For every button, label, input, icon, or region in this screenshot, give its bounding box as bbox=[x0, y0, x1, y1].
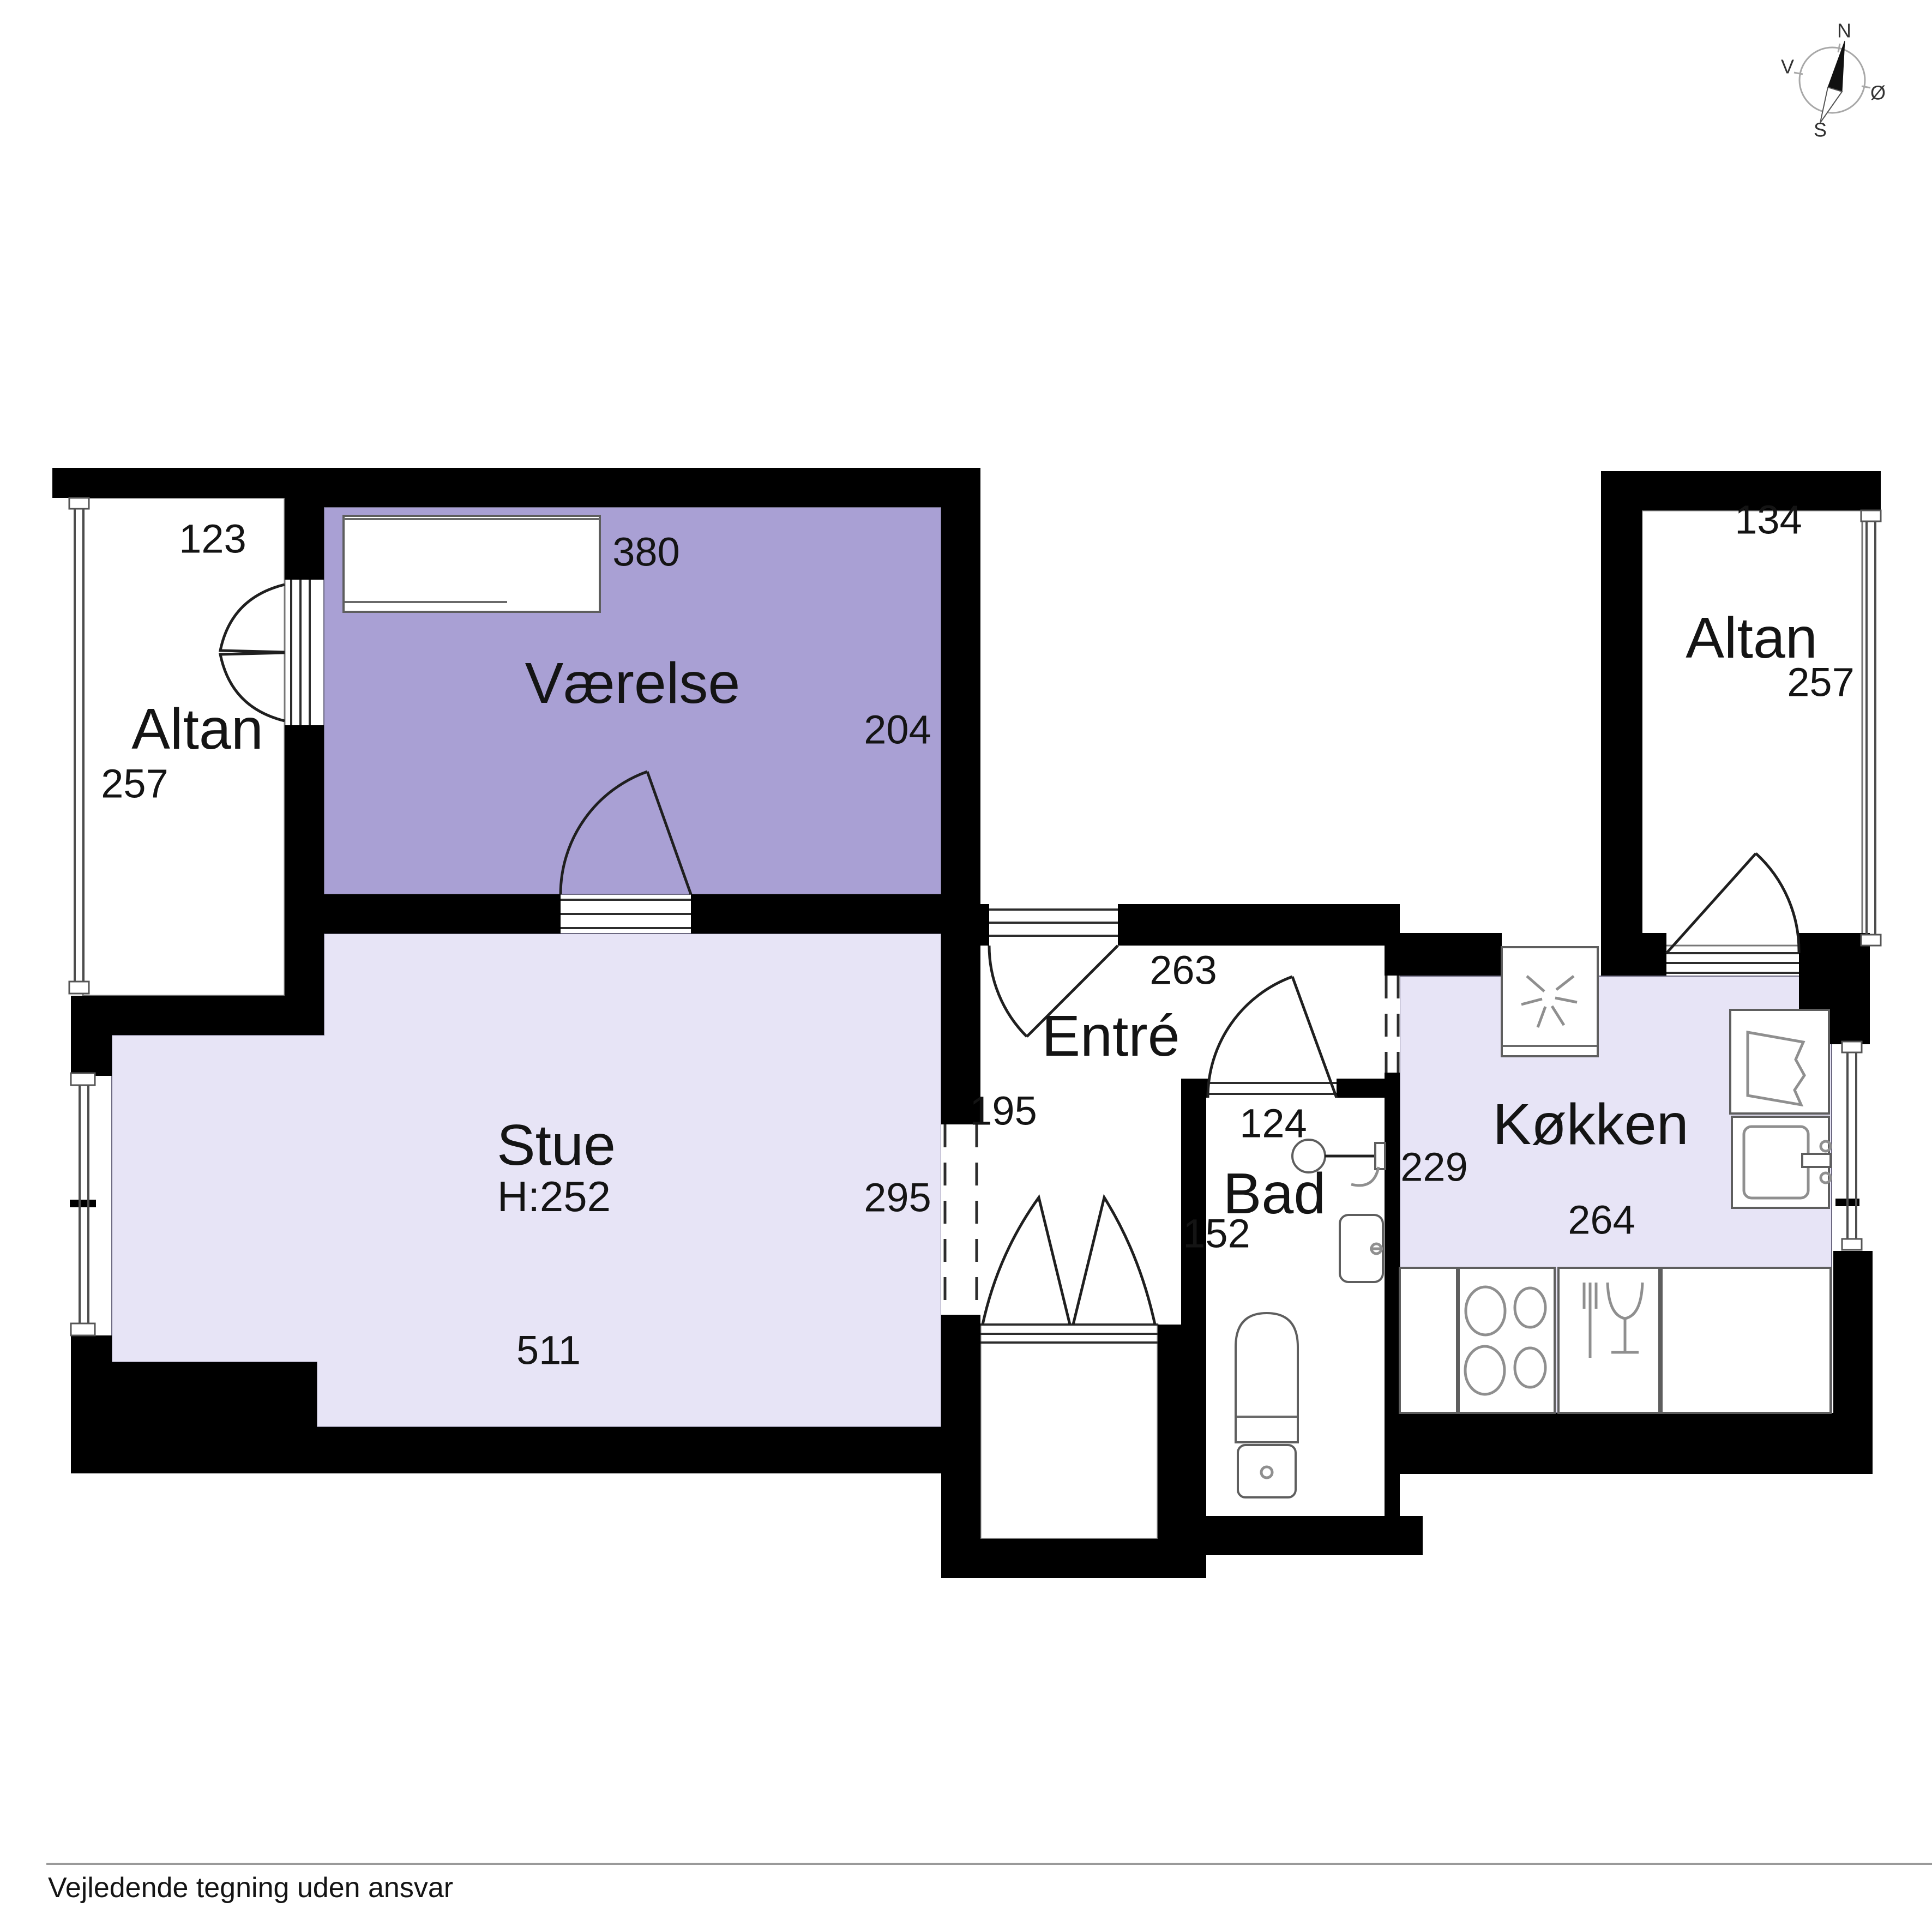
wall-entre-top-left-stub bbox=[980, 904, 989, 946]
compass-w: V bbox=[1781, 56, 1794, 78]
vaerelse-width: 380 bbox=[612, 529, 679, 575]
altan-left-depth: 257 bbox=[101, 761, 168, 806]
wall-bad-left bbox=[1181, 1079, 1206, 1325]
entry-landing-floor bbox=[980, 1325, 1158, 1539]
wall-altan-left-top bbox=[52, 468, 287, 498]
koekken-label: Køkken bbox=[1492, 1092, 1688, 1157]
wall-bad-top-right bbox=[1337, 1079, 1385, 1098]
altan-right-railing bbox=[1861, 510, 1881, 946]
footer-disclaimer: Vejledende tegning uden ansvar bbox=[48, 1872, 453, 1904]
koekken-counter bbox=[1400, 1268, 1831, 1413]
compass-n: N bbox=[1837, 20, 1851, 42]
wall-stue-bottom-right bbox=[317, 1427, 980, 1473]
koekken-fridge-unit bbox=[1730, 1010, 1829, 1114]
bad-width: 124 bbox=[1239, 1101, 1307, 1146]
wall-stue-right-upper bbox=[941, 468, 980, 1124]
vaerelse-door-sill bbox=[561, 900, 691, 928]
compass-e: Ø bbox=[1870, 82, 1886, 104]
stue-opening: 195 bbox=[970, 1088, 1037, 1134]
vaerelse-label: Værelse bbox=[525, 651, 741, 715]
koekken-sink bbox=[1732, 1117, 1831, 1208]
floorplan-page: Altan 123 257 Værelse 380 204 Stue H:252… bbox=[0, 0, 1932, 1932]
koekken-faucet bbox=[1802, 1154, 1831, 1167]
stue-label: Stue bbox=[497, 1113, 616, 1177]
wall-bad-bottom bbox=[1205, 1516, 1423, 1555]
counter-left bbox=[1400, 1268, 1457, 1413]
footer: Vejledende tegning uden ansvar bbox=[46, 1864, 1932, 1904]
wall-stue-bottom-left bbox=[71, 1362, 317, 1473]
stue-window-divider-tick bbox=[70, 1200, 96, 1207]
wall-vaerelse-top bbox=[287, 468, 980, 507]
wall-bad-top-left bbox=[1181, 1079, 1208, 1098]
altan-left-door-sill bbox=[291, 580, 310, 725]
wall-entre-top bbox=[1118, 904, 1400, 946]
wall-altan-divider-upper bbox=[285, 468, 324, 580]
compass-needle-south bbox=[1820, 87, 1842, 123]
bad-sink bbox=[1340, 1215, 1383, 1282]
entre-width: 263 bbox=[1149, 948, 1217, 993]
vaerelse-depth: 204 bbox=[864, 707, 931, 753]
counter-right bbox=[1662, 1268, 1831, 1413]
koekken-left: 229 bbox=[1400, 1145, 1467, 1190]
koekken-width: 264 bbox=[1568, 1197, 1635, 1243]
altan-right-door-sill bbox=[1666, 953, 1799, 973]
wall-altan-right-stub bbox=[1601, 933, 1666, 976]
stue-entre-passage-gap bbox=[941, 1124, 980, 1315]
stue-ceiling: H:252 bbox=[497, 1172, 611, 1220]
wall-vaerelse-stue-left bbox=[324, 894, 561, 934]
wall-altan-divider-lower bbox=[285, 725, 324, 1035]
altan-right-width: 134 bbox=[1735, 497, 1802, 543]
altan-right-floor bbox=[1642, 510, 1862, 946]
compass: N Ø S V bbox=[1781, 20, 1886, 141]
floorplan-drawing: Altan 123 257 Værelse 380 204 Stue H:252… bbox=[0, 0, 1932, 1932]
koekken-fan-unit bbox=[1502, 947, 1598, 1056]
wall-koekken-top-left-band bbox=[1385, 933, 1502, 976]
bad-depth: 152 bbox=[1183, 1211, 1250, 1256]
stue-width: 511 bbox=[516, 1328, 581, 1373]
compass-s: S bbox=[1814, 119, 1827, 141]
altan-right-depth: 257 bbox=[1787, 660, 1854, 705]
altan-left-width: 123 bbox=[179, 516, 246, 562]
wall-koekken-right-lower bbox=[1833, 1251, 1873, 1474]
wall-altan-left-bottom bbox=[71, 996, 324, 1035]
wall-vaerelse-stue-right bbox=[691, 894, 941, 934]
entre-label: Entré bbox=[1042, 1004, 1179, 1068]
wall-koekken-bottom bbox=[1385, 1413, 1873, 1474]
koekken-window bbox=[1842, 1042, 1862, 1250]
bad-toilet bbox=[1236, 1313, 1298, 1497]
stue-depth: 295 bbox=[864, 1175, 931, 1220]
wall-altan-right-left bbox=[1601, 471, 1642, 976]
vaerelse-wardrobe bbox=[344, 516, 600, 612]
altan-left-label: Altan bbox=[131, 697, 263, 761]
entrance-door-sill bbox=[989, 910, 1118, 936]
wall-landing-right bbox=[1158, 1325, 1206, 1578]
wall-stue-right-lower bbox=[941, 1315, 980, 1473]
wall-stue-left-upper bbox=[71, 1035, 112, 1076]
